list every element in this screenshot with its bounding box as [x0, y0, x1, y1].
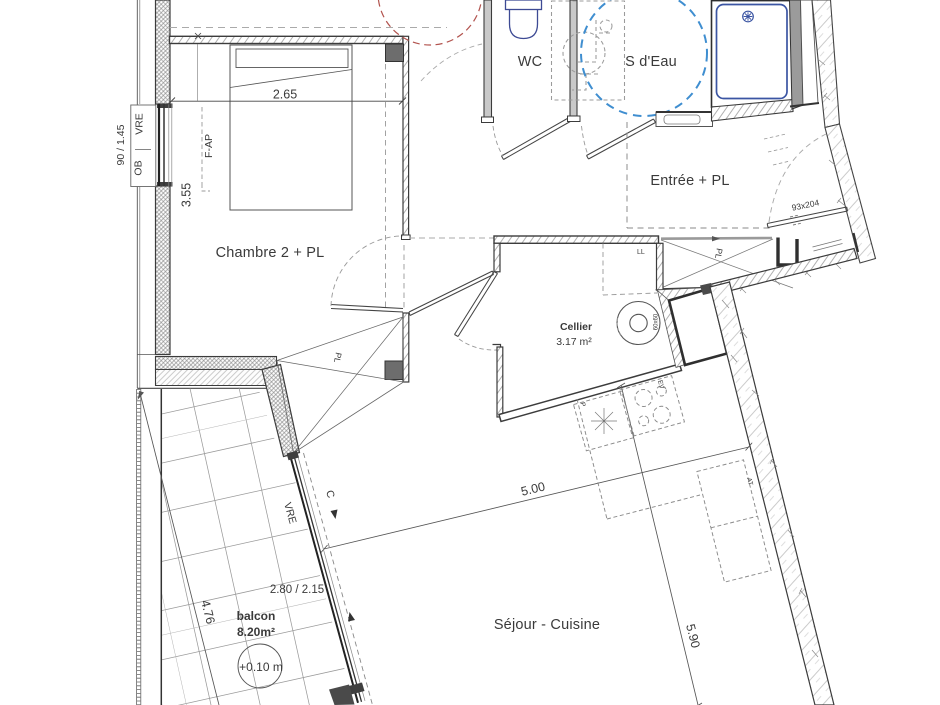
- svg-text:3.55: 3.55: [180, 183, 194, 207]
- svg-text:+0.10 m: +0.10 m: [239, 660, 283, 674]
- svg-text:S d'Eau: S d'Eau: [625, 54, 677, 70]
- svg-text:2.80 / 2.15: 2.80 / 2.15: [270, 584, 324, 596]
- svg-text:8.20m²: 8.20m²: [237, 625, 275, 639]
- svg-text:2.65: 2.65: [273, 88, 297, 102]
- svg-text:VRE: VRE: [134, 113, 146, 135]
- svg-text:Cellier: Cellier: [560, 321, 592, 333]
- svg-text:balcon: balcon: [237, 609, 276, 623]
- svg-text:60x60: 60x60: [654, 313, 660, 330]
- svg-text:LL: LL: [637, 249, 645, 256]
- svg-text:PL: PL: [713, 248, 725, 260]
- svg-text:F-AP: F-AP: [203, 134, 215, 158]
- svg-text:90 / 1.45: 90 / 1.45: [115, 124, 127, 165]
- svg-text:Chambre 2 + PL: Chambre 2 + PL: [216, 245, 325, 261]
- svg-text:3.17 m²: 3.17 m²: [556, 336, 592, 348]
- svg-text:OB: OB: [133, 160, 145, 175]
- svg-text:Entrée + PL: Entrée + PL: [650, 173, 729, 189]
- svg-text:WC: WC: [518, 54, 543, 70]
- svg-text:Séjour - Cuisine: Séjour - Cuisine: [494, 617, 600, 633]
